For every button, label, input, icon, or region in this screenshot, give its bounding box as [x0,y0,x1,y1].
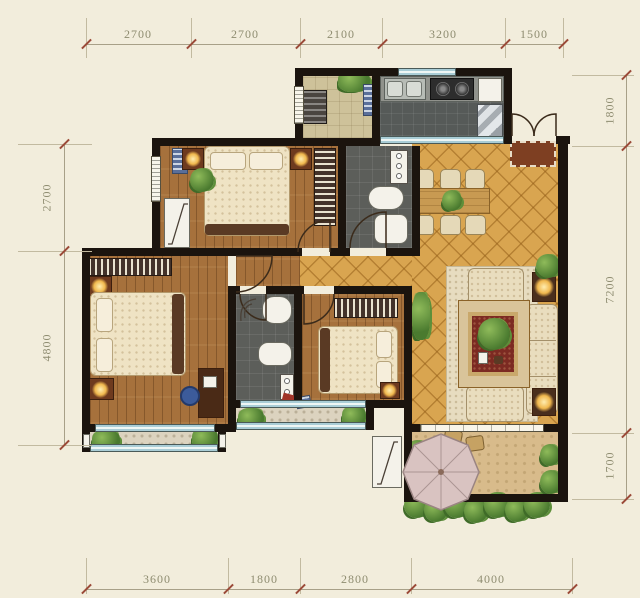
dim-label-top-3: 2100 [311,27,371,42]
master-door-swing [236,256,272,292]
dim-label-bottom-2: 1800 [234,572,294,587]
duct-zigzag [168,204,188,244]
dim-label-left-1: 2700 [40,168,55,228]
plan-symbol-overlay [0,0,640,598]
dim-label-bottom-3: 2800 [325,572,385,587]
floor-plan-canvas: 2700 2700 2100 3200 1500 3600 1800 2800 … [0,0,640,598]
dim-label-right-2: 7200 [603,260,618,320]
dim-label-top-2: 2700 [215,27,275,42]
entry-door-right-swing [534,114,556,136]
bathroom-2-door-swing [240,294,266,320]
dim-label-right-3: 1700 [603,436,618,496]
dim-label-top-4: 3200 [413,27,473,42]
duct-zigzag [377,442,398,484]
dim-label-bottom-4: 4000 [461,572,521,587]
bedroom-2-door-swing [304,294,334,324]
entry-door-left-swing [512,114,534,136]
dim-label-right-1: 1800 [603,81,618,141]
dim-label-top-1: 2700 [108,27,168,42]
parasol-icon [403,434,479,510]
bathroom-1-door-swing [350,212,386,248]
dim-label-left-2: 4800 [40,318,55,378]
bedroom-top-door-swing [298,220,330,252]
dim-label-bottom-1: 3600 [127,572,187,587]
dim-label-top-5: 1500 [504,27,564,42]
